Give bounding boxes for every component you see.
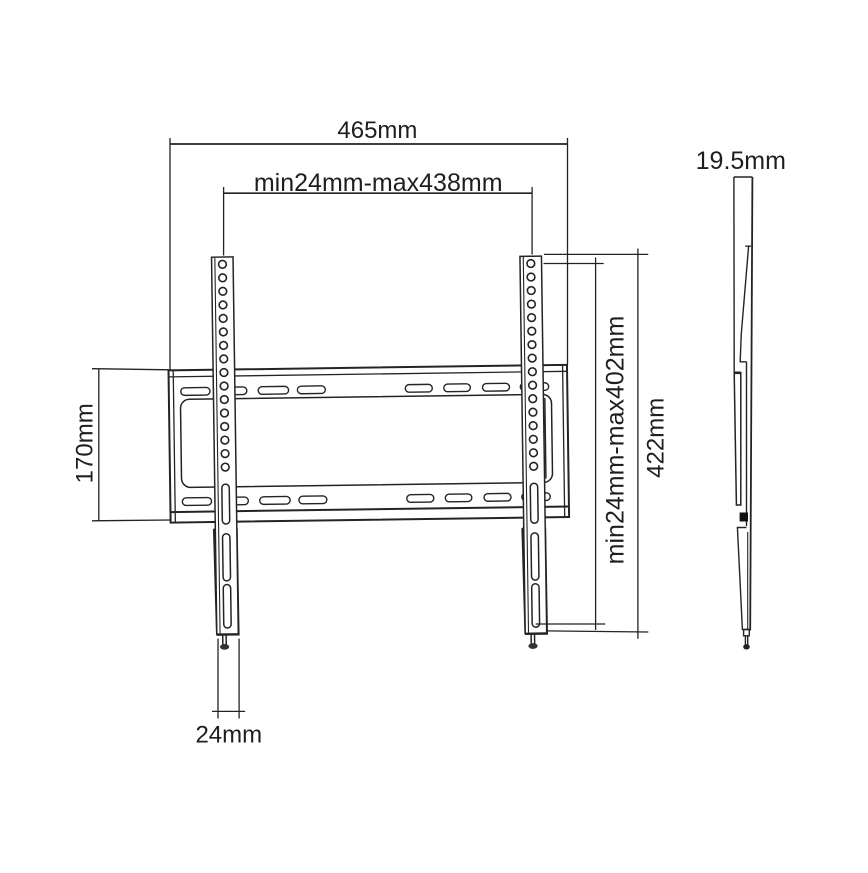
svg-text:170mm: 170mm xyxy=(71,403,98,483)
svg-text:422mm: 422mm xyxy=(642,398,669,478)
svg-text:min24mm-max402mm: min24mm-max402mm xyxy=(602,316,630,565)
svg-text:19.5mm: 19.5mm xyxy=(696,147,786,175)
svg-text:24mm: 24mm xyxy=(195,722,262,749)
svg-text:465mm: 465mm xyxy=(337,117,417,144)
svg-text:min24mm-max438mm: min24mm-max438mm xyxy=(254,169,503,197)
